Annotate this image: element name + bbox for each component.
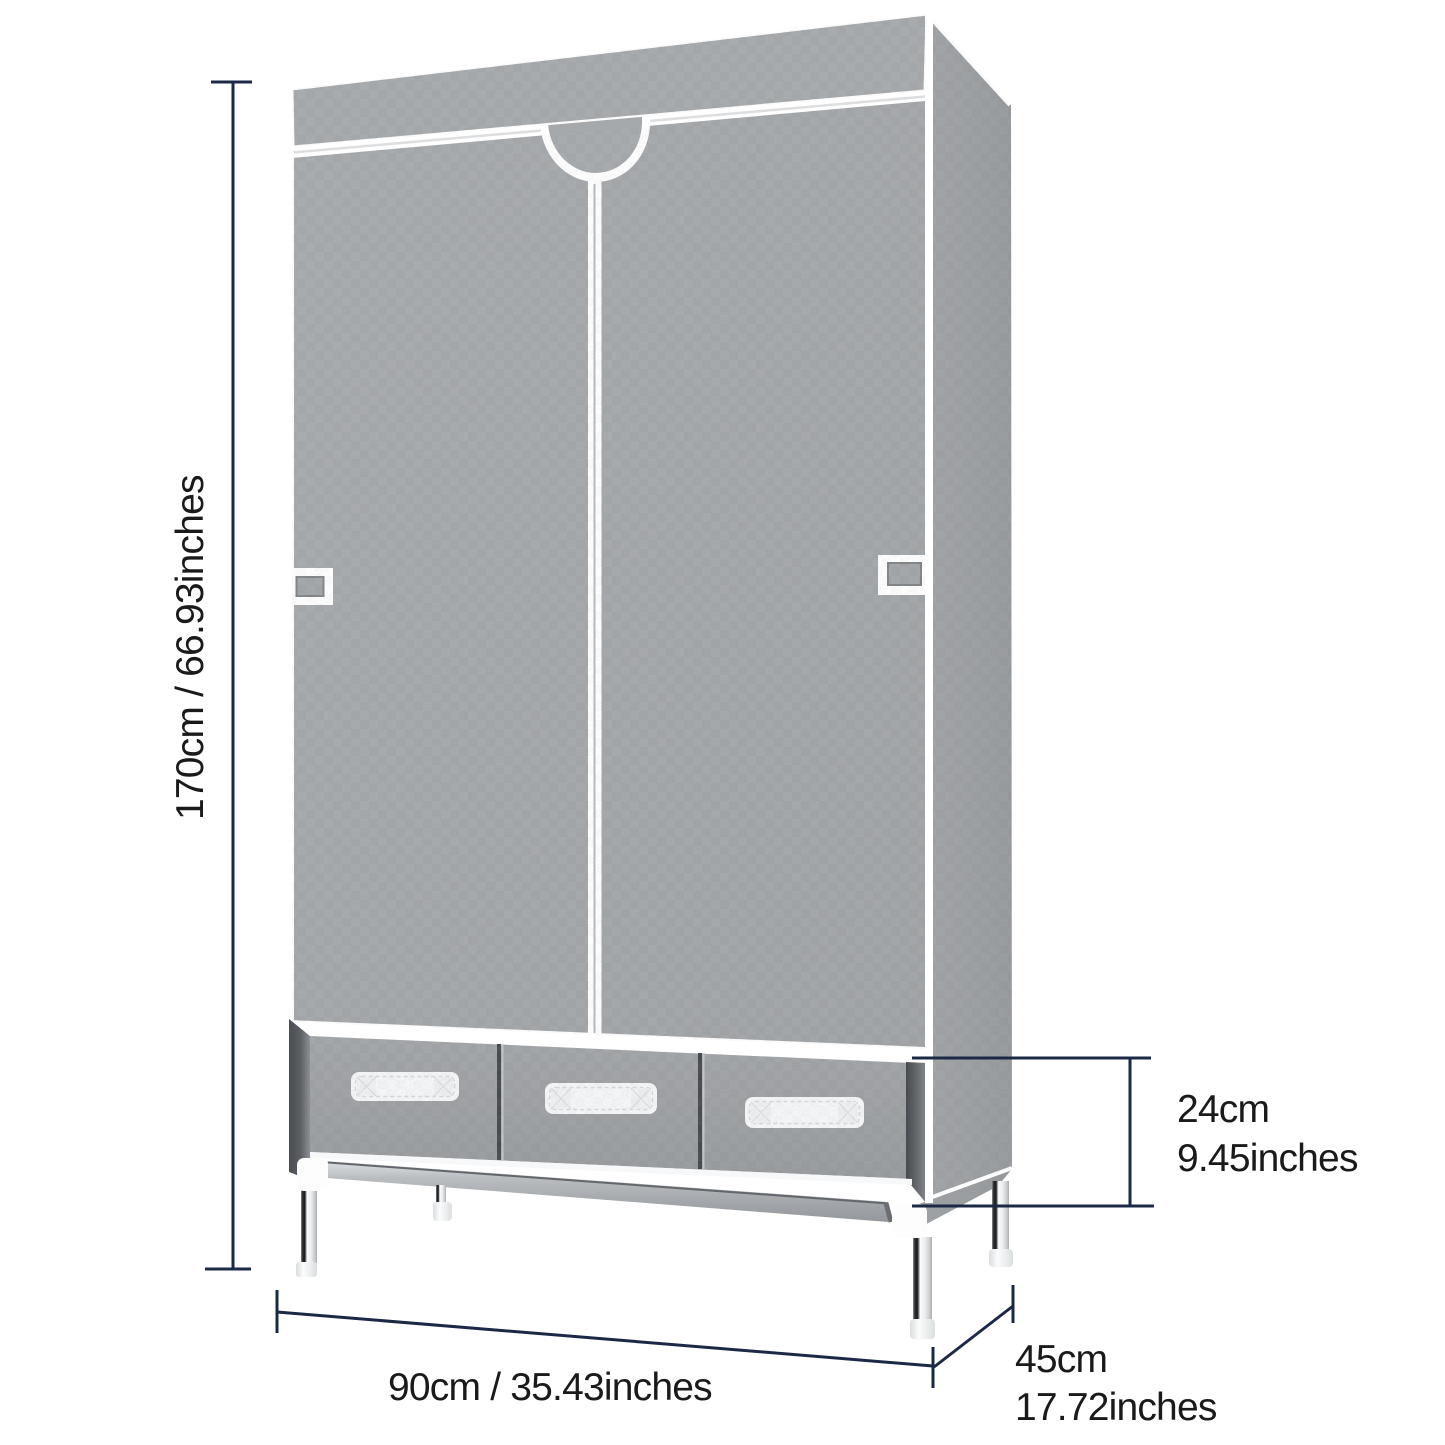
svg-text:90cm / 35.43inches: 90cm / 35.43inches (388, 1366, 712, 1409)
svg-text:17.72inches: 17.72inches (1015, 1386, 1217, 1429)
svg-text:170cm / 66.93inches: 170cm / 66.93inches (169, 475, 212, 820)
svg-text:24cm: 24cm (1177, 1088, 1269, 1131)
svg-text:9.45inches: 9.45inches (1177, 1137, 1358, 1180)
svg-text:45cm: 45cm (1015, 1338, 1107, 1381)
